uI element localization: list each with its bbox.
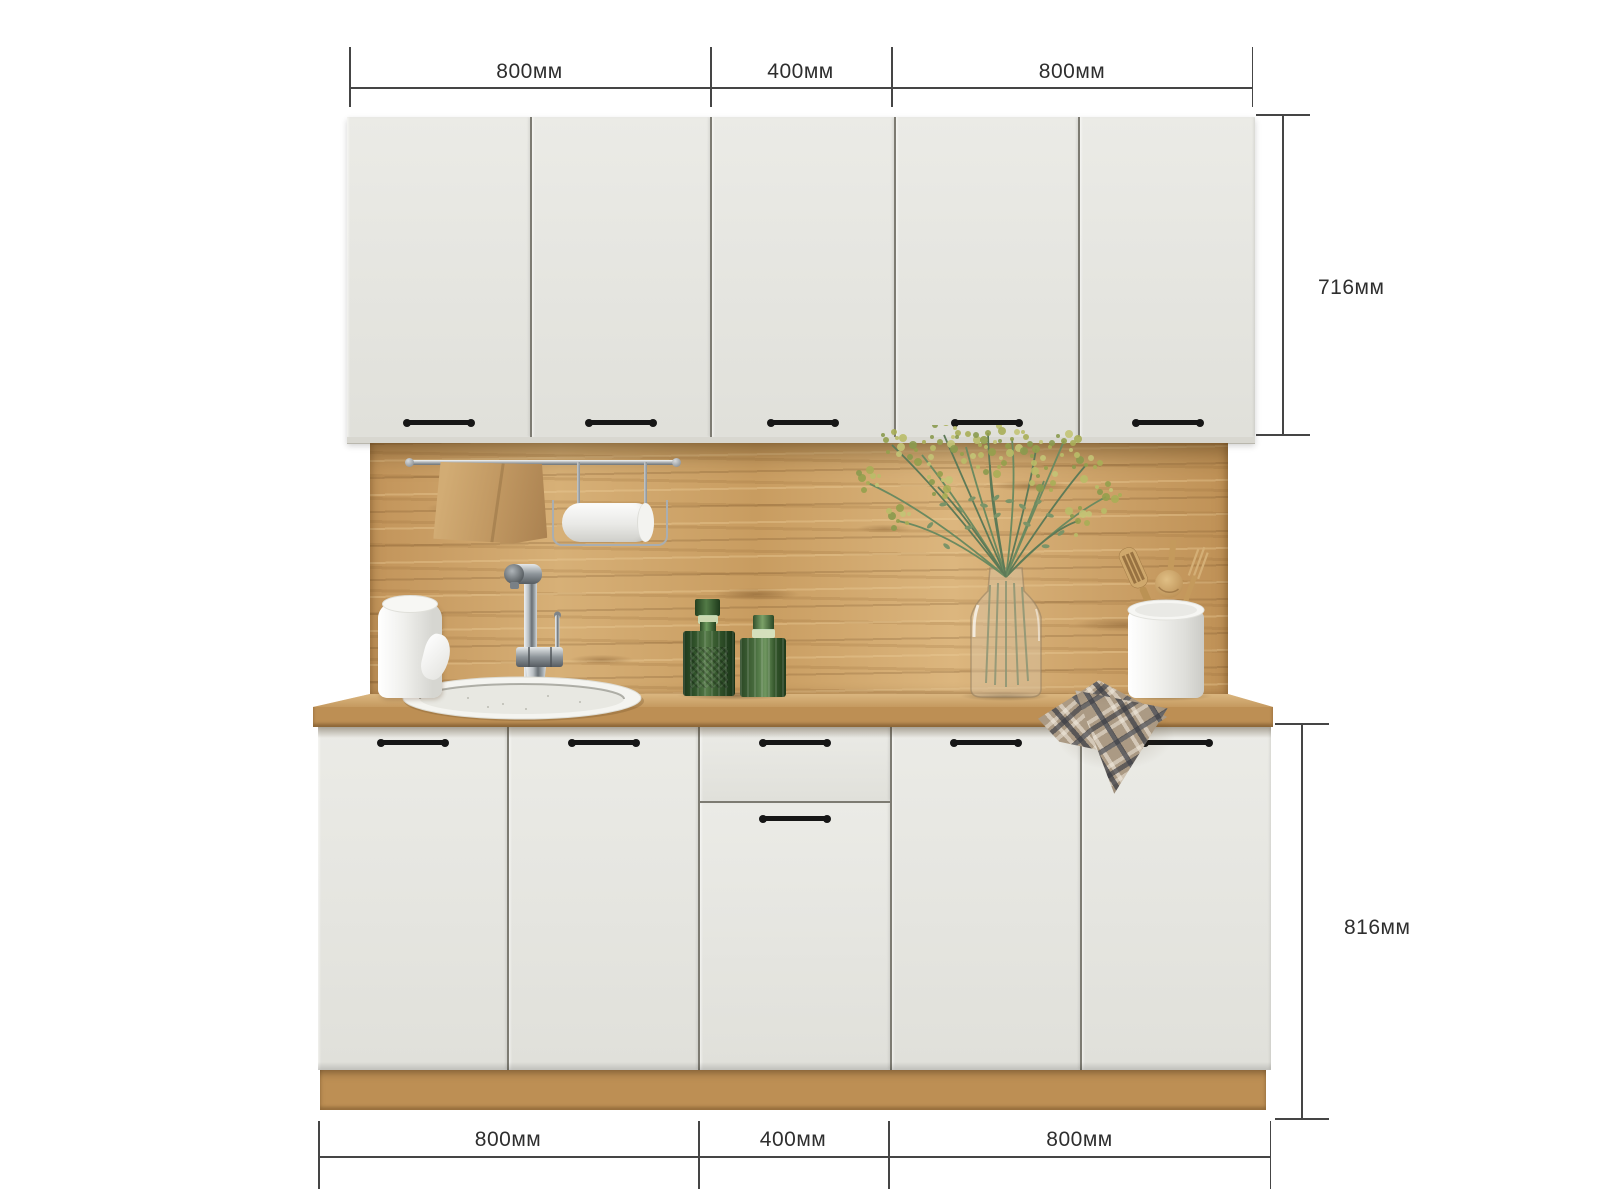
bottle-facet-texture: [690, 647, 728, 688]
cabinet-handle: [951, 740, 1021, 745]
upper-cabinet-door: [896, 117, 1078, 437]
dimension-label: 816мм: [1344, 916, 1410, 940]
greenery: [856, 425, 1122, 577]
dimension-label: 716мм: [1318, 276, 1384, 300]
dimension-label: 400мм: [710, 60, 891, 84]
upper-cabinet-door: [347, 117, 530, 437]
upper-cabinet-door: [1080, 117, 1255, 437]
dimension-tick: [1275, 723, 1329, 725]
dimension-line: [349, 87, 1253, 89]
drawer-handle: [760, 740, 830, 745]
bottle-stopper: [695, 599, 720, 616]
upper-cabinets: [347, 117, 1255, 443]
lower-cabinet-drawer: [700, 727, 890, 801]
bottle-body: [740, 638, 786, 697]
green-glass-decanter: [683, 598, 735, 697]
dimension-label: 800мм: [318, 1128, 698, 1152]
paper-towel-roll: [378, 598, 442, 698]
bottle-collar: [752, 629, 775, 638]
lower-cabinet-door: [318, 727, 507, 1070]
cabinet-handle: [404, 420, 474, 425]
dimension-label: 800мм: [891, 60, 1253, 84]
cabinet-handle: [760, 816, 830, 821]
cabinet-handle: [378, 740, 448, 745]
dimension-line: [1282, 115, 1284, 435]
cabinet-handle: [569, 740, 639, 745]
dimension-label: 800мм: [349, 60, 710, 84]
utensil-crock: [1105, 540, 1217, 700]
dimension-line: [318, 1156, 1271, 1158]
cabinet-handle: [586, 420, 656, 425]
dimension-tick: [1256, 434, 1310, 436]
lower-cabinet-door: [892, 727, 1080, 1070]
dimension-line: [1301, 724, 1303, 1119]
dimension-tick: [1256, 114, 1310, 116]
dimension-label: 400мм: [698, 1128, 888, 1152]
upper-cabinet-door: [532, 117, 710, 437]
plinth: [320, 1070, 1266, 1110]
upper-cabinet-door: [712, 117, 894, 437]
green-glass-decanter: [740, 614, 786, 698]
rail-hook: [577, 462, 580, 504]
kitchen-product-image: 800мм 400мм 800мм 716мм 816мм 800мм 400м…: [0, 0, 1600, 1200]
dimension-label: 800мм: [888, 1128, 1271, 1152]
bottle-body: [683, 631, 735, 696]
paper-towel-holder-roll: [562, 503, 654, 542]
cabinet-handle: [1133, 420, 1203, 425]
tan-kitchen-towel: [433, 462, 549, 544]
glass-vase: [971, 568, 1041, 697]
rail-hook: [644, 462, 647, 504]
dimension-tick: [1275, 1118, 1329, 1120]
bottle-stopper: [753, 615, 774, 630]
glass-vase-with-greenery: [840, 425, 1130, 710]
lower-cabinet-door: [509, 727, 698, 1070]
lower-cabinet-door: [700, 803, 890, 1070]
lower-cabinets: [318, 727, 1271, 1070]
cabinet-handle: [768, 420, 838, 425]
lower-cabinet-bottom-shade: [318, 1062, 1271, 1070]
